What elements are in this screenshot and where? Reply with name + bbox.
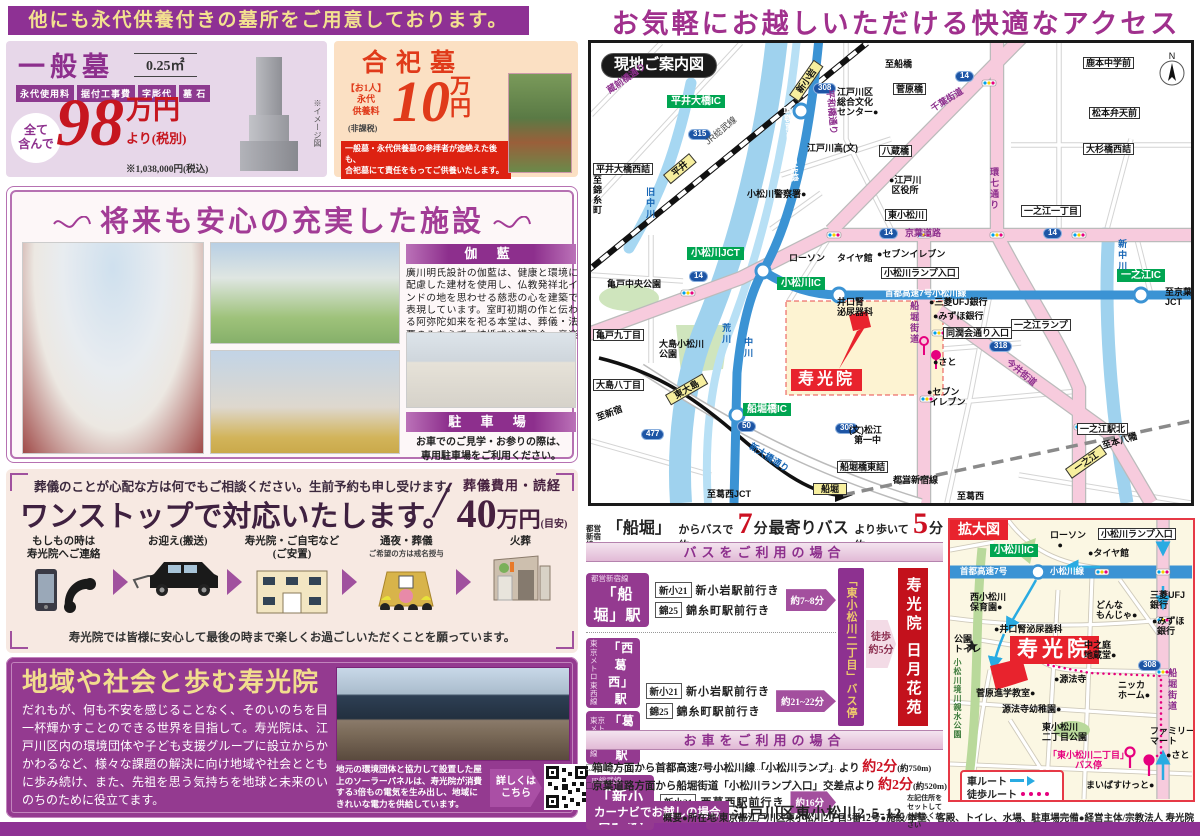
map-label: 小松川ランプ入口 (881, 267, 959, 279)
map-label: 八蔵橋 (879, 145, 912, 157)
top-banner: 他にも永代供養付きの墓所をご用意しております。 (8, 6, 529, 35)
price-unit: 万 (450, 75, 471, 97)
enlarged-map: 拡大図小松川ICローソン ●●タイヤ館小松川ランプ入口首都高速7号小松川線西小松… (948, 518, 1195, 802)
destination-bar: 寿光院 日月花苑 (898, 568, 928, 726)
general-grave-card: 一般墓 0.25㎡ 永代使用料 据付工事費 字彫代 墓 石 全て 含んで 98 … (6, 41, 327, 177)
map-label: 大島小松川 公園 (659, 339, 704, 359)
map-label: 至葛西 (957, 491, 984, 501)
map-label: ●セブン イレブン (927, 387, 966, 407)
map-label: 東大島 (665, 373, 708, 405)
communal-grave-card: 合祀墓 【お1人】 永代 供養料 (非課税) 10 万 円 一般墓・永代供養墓の… (334, 41, 578, 177)
bus-section-title: バスをご利用の場合 (586, 542, 943, 562)
cost-number: 40 (457, 494, 497, 534)
map-label: 公園 トイレ (954, 634, 981, 654)
route-code: 錦25 (646, 703, 673, 719)
step-pickup: お迎え(搬送) (128, 535, 227, 603)
parking-photo (406, 332, 576, 408)
step-cremation: 火葬 (471, 535, 570, 603)
step-repose: 寿光院・ご自宅など (ご安置) (242, 535, 341, 616)
map-label: 一之江ランプ (1011, 319, 1071, 331)
step-contact: もしもの時は 寿光院へご連絡 (14, 535, 113, 616)
arrow-icon (456, 569, 471, 595)
map-label: 首都高速7号 (960, 567, 1007, 577)
qr-code (544, 764, 590, 810)
slash-divider: / (434, 475, 448, 527)
map-label: 一之江一丁目 (1021, 205, 1081, 217)
funeral-section: 葬儀のことが心配な方は何でもご相談ください。生前予約も申し受けます。 ワンストッ… (6, 469, 578, 653)
more-info-button[interactable]: 詳しくは こちら (490, 769, 542, 807)
flourish-icon (52, 216, 92, 232)
map-label: 14 (955, 71, 974, 82)
map-label: 大島八丁目 (593, 379, 644, 391)
tax-free-note: (非課税) (348, 123, 377, 134)
map-label: 一之江駅北 (1077, 423, 1128, 435)
map-label: ●三菱UFJ銀行 (929, 297, 987, 307)
map-label: 井口腎 泌尿器科 (837, 297, 873, 317)
map-label: 船堀街道 (909, 301, 919, 345)
funeral-title: ワンストップで対応いたします。 (20, 493, 452, 535)
building-icon (247, 565, 337, 615)
map-label: 亀戸九丁目 (593, 329, 644, 341)
map-label: 船堀橋IC (743, 403, 791, 416)
map-label: 14 (879, 228, 898, 239)
map-label: 平井 (663, 153, 697, 184)
route-code: 新小21 (646, 683, 683, 699)
map-label: 松本弁天前 (1089, 107, 1140, 119)
map-label: 菅原橋 (893, 83, 926, 95)
map-label: 中之庭 地蔵堂● (1084, 640, 1116, 660)
temple-interior-photo (210, 350, 400, 454)
gravestone-photo (231, 47, 307, 171)
map-label: 同潤会通り入口 (943, 327, 1012, 339)
map-label: 菅原進学教室● (976, 688, 1035, 698)
map-label: 鹿本中学前 (1083, 57, 1134, 69)
map-label: 平井大橋IC (667, 95, 725, 108)
image-note: ※イメージ図 (312, 99, 323, 147)
map-label: 一之江 (1065, 444, 1107, 479)
map-label: まいばすけっと● (1086, 780, 1154, 790)
arrow-icon (113, 569, 128, 595)
map-label: ●タイヤ館 (1088, 548, 1129, 558)
map-label: (文)松江 第一中 (849, 425, 882, 445)
price-unit: 万円 (126, 97, 186, 124)
route-code: 錦25 (655, 602, 682, 618)
map-label: 小松川線 (1050, 567, 1084, 577)
funeral-footer: 寿光院では皆様に安心して最後の時まで楽しくお過ごしいただくことを願っています。 (6, 629, 578, 645)
car-route-arrow-icon (1027, 776, 1040, 786)
map-label: 首都高速中央環状線 (782, 105, 799, 182)
general-grave-size: 0.25㎡ (134, 53, 197, 77)
garan-heading: 伽 藍 (406, 244, 576, 264)
map-label: 京葉道路 (905, 228, 941, 238)
hearse-icon (130, 552, 226, 602)
map-label: 三菱UFJ 銀行 (1150, 590, 1185, 610)
bus-row: 都営新宿線 「船堀」駅 新小21新小岩駅前行き 錦25錦糸町駅前行き 約7~8分 (586, 568, 836, 633)
fee-label: 【お1人】 永代 供養料 (342, 83, 390, 117)
cost-note: (目安) (541, 515, 568, 530)
solar-caption: 地元の環境団体と協力して設置した屋上のソーラーパネルは、寿光院が消費する3倍もの… (336, 764, 486, 810)
map-label: 至京葉 JCT (1165, 287, 1192, 307)
altar-icon (361, 566, 451, 610)
communal-grave-price: 10 万 円 (392, 73, 471, 131)
price-suffix: より(税別) (126, 128, 186, 147)
map-label: 拡大図 (950, 520, 1008, 540)
station-badge: 東京メトロ 東西線 「西葛西」駅 (586, 638, 640, 708)
map-label: 14 (689, 271, 708, 282)
phone-icon (21, 565, 107, 615)
communal-grave-photo (508, 73, 572, 173)
map-label: 旧中川 (645, 187, 655, 220)
map-label: 小松川境川親水公園 (952, 658, 961, 739)
map-label: 「東小松川二丁目」 バス停 (1048, 750, 1129, 770)
map-label: 至葛西JCT (707, 489, 751, 499)
map-label: ●さと (933, 357, 956, 367)
map-label: 東小松川 (885, 209, 927, 221)
car-direction: □箱崎方面から首都高速7号小松川線「小松川ランプ」より 約2分(約750m) (586, 756, 931, 776)
community-section: 地域や社会と歩む寿光院 だれもが、何も不安を感じることなく、そのいのちを目一杯輝… (6, 657, 578, 818)
flyer-page: 他にも永代供養付きの墓所をご用意しております。 一般墓 0.25㎡ 永代使用料 … (0, 0, 1200, 836)
step-wake: 通夜・葬儀 ご希望の方は戒名授与 (357, 535, 456, 614)
overview-caption: 概要●所在地/東京都江戸川区東小松川2丁目5番12号●施設/本堂、客殿、トイレ、… (590, 810, 1194, 824)
map-label: 小松川ランプ入口 (1098, 528, 1176, 540)
main-map-labels: 現地ご案内図平井大橋IC315平井大橋西詰蔵前橋通りJR総武線平井新小岩至船橋3… (591, 43, 1191, 503)
map-label: タイヤ館 (837, 253, 873, 263)
corner-flourish (10, 473, 28, 491)
map-label: 小松川IC (777, 277, 825, 290)
facilities-section: 将来も安心の充実した施設 伽 藍 廣川明氏設計の伽藍は、健康と環境に配慮した建材… (6, 186, 578, 463)
price-number: 10 (392, 73, 450, 131)
walk-time-badge: 徒歩 約5分 (866, 620, 896, 668)
bus-stop-bar: 「東小松川二丁目」バス停 (838, 568, 864, 726)
arrow-icon (342, 569, 357, 595)
map-label: 船堀 (813, 483, 847, 495)
community-body: だれもが、何も不安を感じることなく、そのいのちを目一杯輝かすことのできる世界を目… (22, 701, 328, 809)
map-label: 平井大橋西詰 (593, 163, 653, 175)
map-label: 現地ご案内図 (601, 53, 717, 78)
map-label: 荒川 (721, 323, 731, 345)
map-label: 小松川IC (990, 544, 1038, 557)
map-label: 至船橋 (885, 59, 912, 69)
map-label: 都営新宿線 (893, 475, 938, 485)
map-label: 環七通り (989, 167, 999, 211)
map-label: 50 (737, 421, 756, 432)
map-label: ●さと (1166, 750, 1189, 760)
flourish-icon (492, 216, 532, 232)
route-code: 新小21 (655, 582, 692, 598)
map-label: ローソン (789, 253, 825, 263)
map-label: 千葉街道 (929, 86, 965, 114)
map-label: 小松川JCT (687, 247, 744, 260)
general-grave-price: 98 万円 より(税別) (56, 91, 186, 154)
map-label: 江戸川高(文) (807, 143, 858, 153)
map-label: ●みずほ 銀行 (1152, 616, 1184, 636)
map-label: ●井口腎泌尿器科 (994, 624, 1062, 634)
map-label: 至 錦 糸 町 (593, 175, 602, 215)
map-label: 大杉橋西詰 (1083, 143, 1134, 155)
communal-grave-note: 一般墓・永代供養墓の参拝者が途絶えた後も、 合祀墓にて責任をもってご供養いたしま… (341, 141, 511, 179)
facilities-title: 将来も安心の充実した施設 (12, 198, 572, 240)
map-label: 寿光院 (791, 369, 862, 391)
arrow-icon (227, 569, 242, 595)
map-label: ファミリー マート (1150, 726, 1195, 746)
route-legend: 車ルート 徒歩ルート (960, 770, 1064, 802)
general-grave-title: 一般墓 (18, 45, 114, 84)
map-label: ●源法寺 (1054, 674, 1086, 684)
map-label: 亀戸中央公園 (607, 279, 661, 289)
parking-heading: 駐 車 場 (406, 412, 576, 432)
price-number: 98 (56, 91, 124, 154)
temple-interior-photo (210, 242, 400, 344)
time-badge: 約21~22分 (776, 690, 836, 712)
car-direction: □京葉道路方面から船堀街道「小松川ランプ入口」交差点より 約2分(約520m) (586, 774, 947, 794)
parking-note: お車でのご見学・お参りの際は、 専用駐車場をご利用ください。 (406, 436, 576, 464)
access-title: お気軽にお越しいただける快適なアクセス (595, 2, 1197, 41)
map-label: ●みずほ銀行 (933, 311, 983, 321)
access-panel: 都営 新宿線 「船堀」駅 からバスで約 7 分 最寄りバス停 より歩いて約 5 … (586, 512, 943, 812)
map-label: 源法寺幼稚園● (1002, 704, 1061, 714)
map-label: 新小岩 (789, 60, 824, 102)
zoom-map-labels: 拡大図小松川ICローソン ●●タイヤ館小松川ランプ入口首都高速7号小松川線西小松… (950, 520, 1193, 800)
map-label: 477 (641, 429, 664, 440)
map-label: ●江戸川 区役所 (889, 175, 921, 195)
solar-panel-photo (336, 667, 570, 761)
time-badge: 約7~8分 (786, 589, 836, 611)
map-label: 江戸川区 総合文化 センター● (837, 87, 878, 117)
map-label: 小松川警察署● (747, 189, 806, 199)
cost-unit: 万円 (497, 502, 541, 534)
temple-interior-photo (22, 242, 204, 454)
map-label: 14 (1043, 228, 1062, 239)
map-label: 船堀街道 (1167, 668, 1177, 712)
map-label: 西小松川 保育園● (970, 592, 1006, 612)
map-label: 308 (1138, 660, 1161, 671)
map-label: 318 (989, 341, 1012, 352)
cremation-icon (480, 552, 560, 602)
map-label: 新中川 (1117, 239, 1127, 272)
car-section-title: お車をご利用の場合 (586, 730, 943, 750)
tax-note: ※1,038,000円(税込) (126, 161, 208, 175)
funeral-steps: もしもの時は 寿光院へご連絡 お迎え(搬送) 寿光院・ご自宅など (ご安置) 通… (14, 535, 570, 616)
area-guide-map: N 現地ご案内図平井大橋IC315平井大橋西詰蔵前橋通りJR総武線平井新小岩至船… (588, 40, 1194, 506)
map-label: ●セブンイレブン (877, 249, 945, 259)
map-label: 新大橋通り (748, 441, 791, 474)
map-label: 船堀橋東詰 (837, 461, 888, 473)
map-label: 今井街道 (1005, 357, 1039, 388)
all-included-circle: 全て 含んで (11, 113, 61, 163)
map-label: どんな もんじゃ● (1096, 600, 1137, 620)
map-label: 中川 (743, 337, 753, 359)
community-title: 地域や社会と歩む寿光院 (22, 662, 319, 699)
map-label: ニッカ ホーム● (1118, 680, 1150, 700)
map-label: 東小松川 二丁目公園 (1042, 722, 1087, 742)
legend-walk-label: 徒歩ルート (967, 786, 1017, 801)
funeral-cost: 葬儀費用・読経 40 万円 (目安) (452, 475, 572, 534)
price-unit: 円 (450, 97, 471, 119)
station-badge: 都営新宿線 「船堀」駅 (586, 573, 649, 627)
map-label: ローソン ● (1050, 530, 1086, 550)
map-label: 至新宿 (595, 404, 624, 423)
